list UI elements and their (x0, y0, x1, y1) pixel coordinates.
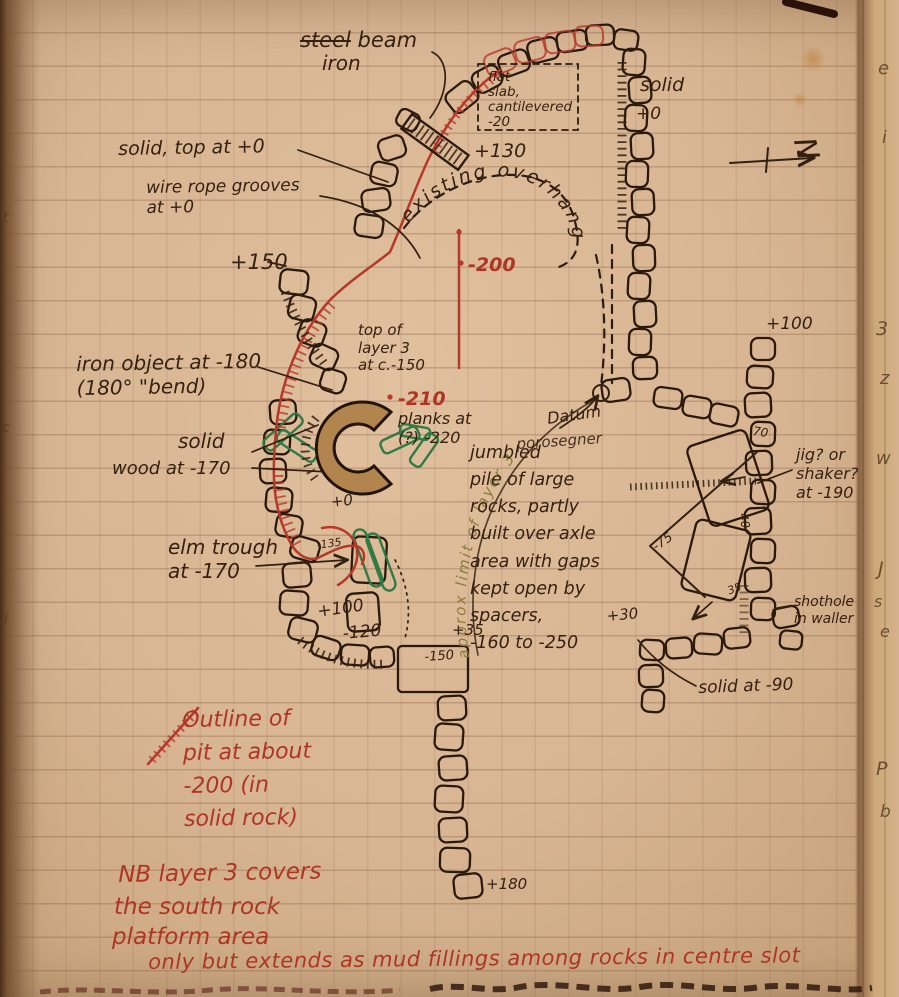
stone (440, 847, 471, 872)
label-solid-right-level: +0 (636, 104, 661, 124)
label-jumbled-note: jumbled pile of large rocks, partly buil… (470, 440, 600, 657)
label-solid-top: solid, top at +0 (118, 135, 265, 160)
overhang-label: existing overhang (396, 159, 590, 242)
label-steel-beam: steel beam (300, 28, 417, 53)
stone (369, 161, 399, 188)
label-solid90: solid at -90 (698, 675, 794, 698)
stone (746, 365, 773, 388)
label-layer3-top: top of layer 3 at c.-150 (358, 322, 425, 375)
label-plus180: +180 (486, 876, 527, 894)
iron-object-c-shape (305, 402, 391, 494)
label-minus200: -200 (468, 254, 516, 276)
stone (779, 630, 803, 650)
cutoff-writing-red (40, 989, 400, 992)
label-num70: 70 (752, 424, 769, 440)
margin-glyph: b (880, 802, 891, 822)
label-nb3: platform area (112, 924, 269, 951)
label-nb1: NB layer 3 covers (118, 858, 322, 889)
margin-glyph: P (876, 758, 887, 780)
stone (279, 590, 309, 616)
label-steel-struck: steel (300, 28, 351, 52)
label-plus150: +150 (230, 250, 288, 275)
stone (665, 637, 692, 659)
label-minus210: -210 (398, 388, 446, 410)
stone (631, 188, 654, 215)
label-minus120: -120 (342, 621, 382, 644)
label-shothole: shothole in waller (794, 594, 854, 627)
jig-hatched-beam (630, 481, 756, 487)
stone (633, 245, 656, 272)
margin-glyph: t (3, 210, 9, 226)
stone (744, 392, 771, 417)
stone (310, 634, 343, 662)
label-jig: jig? or shaker? at -190 (796, 446, 858, 503)
label-plus130: +130 (474, 140, 526, 162)
stone (626, 216, 649, 243)
label-iron: iron (322, 52, 361, 76)
label-plus30: +30 (606, 605, 639, 625)
label-iron-object: iron object at -180 (180° "bend) (76, 350, 262, 400)
label-plus0: +0 (330, 492, 354, 512)
stone (708, 402, 740, 427)
label-num40: 40 (736, 512, 753, 530)
stone (633, 357, 658, 380)
margin-glyph: i (4, 612, 8, 628)
margin-glyph: e (880, 622, 890, 641)
margin-glyph: e (878, 58, 889, 79)
label-plus100-right: +100 (766, 314, 813, 334)
stone (693, 633, 722, 655)
margin-glyph: w (876, 448, 891, 469)
label-nb2: the south rock (114, 894, 280, 921)
stone (438, 755, 468, 781)
stone (751, 539, 776, 564)
label-solid-wood-2: wood at -170 (112, 458, 231, 479)
label-flat-slab: flat slab, cantilevered -20 (488, 70, 572, 129)
corner-mark (786, 2, 834, 14)
stone (438, 817, 467, 842)
stone (751, 338, 775, 360)
stone (641, 689, 664, 712)
label-wire-rope: wire rope grooves at +0 (146, 175, 300, 218)
stone (745, 568, 772, 593)
margin-glyph: 3 (876, 318, 888, 340)
margin-glyph: c (2, 420, 10, 436)
svg-text:existing overhang: existing overhang (396, 159, 590, 242)
stone (453, 873, 483, 900)
label-outline-note: Outline of pit at about -200 (in solid r… (182, 702, 313, 836)
stone (627, 272, 650, 299)
stone (723, 627, 751, 650)
stone (630, 132, 653, 159)
stone (437, 695, 466, 720)
stone (633, 300, 656, 327)
label-minus150: -150 (424, 648, 455, 665)
label-elm-trough: elm trough at -170 (168, 536, 278, 583)
label-solid-wood-1: solid (178, 430, 224, 454)
margin-glyph: J (878, 558, 884, 580)
label-solid-right: solid (640, 74, 684, 96)
stone (639, 665, 664, 688)
stone (653, 386, 684, 410)
stone (434, 785, 463, 812)
margin-glyph: s (874, 592, 882, 611)
stone (434, 723, 464, 751)
label-beam: beam (358, 28, 418, 52)
label-planks: planks at (?) -220 (398, 410, 471, 448)
stone (639, 639, 664, 660)
stone (629, 329, 652, 356)
margin-glyph: z (880, 368, 889, 389)
stone (376, 134, 408, 163)
stone (369, 646, 394, 668)
steel-beam-shape (401, 114, 468, 170)
notebook-page: existing overhang approx limit of layer … (0, 0, 899, 997)
stone (318, 367, 348, 395)
margin-glyph: i (882, 128, 887, 148)
stone (282, 562, 312, 588)
label-plus35: +35 (452, 622, 484, 640)
stone (681, 395, 712, 420)
stone (626, 161, 649, 188)
cutoff-writing (430, 985, 872, 989)
